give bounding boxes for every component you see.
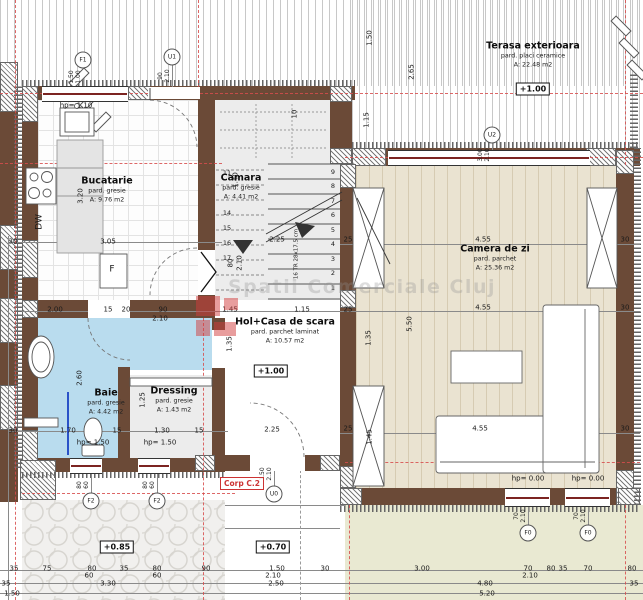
marker-u2: U2 xyxy=(484,127,501,144)
marker-f2: F2 xyxy=(149,493,166,510)
dim-label: 70 xyxy=(584,566,593,573)
dim-label: 30 xyxy=(621,426,630,433)
elevation-badge: +0.85 xyxy=(100,541,134,554)
room-label-terasa-exterioara: Terasa exterioarapard. placi ceramiceA: … xyxy=(486,41,580,70)
dim-label: 1.50 xyxy=(367,30,374,46)
dim-label: F xyxy=(109,266,114,275)
dim-label: 80 xyxy=(547,566,556,573)
dim-label: 20 xyxy=(122,307,131,314)
door-camara-opening xyxy=(198,250,215,295)
dim-label: 80 xyxy=(628,566,637,573)
window-f0-right xyxy=(565,488,610,507)
dim-label: 1.35 xyxy=(227,336,234,352)
dim-label: 25 xyxy=(344,237,353,244)
door-u1-opening xyxy=(148,87,200,99)
room-floor-finish: pard. parchet xyxy=(460,256,529,264)
dim-label: 1.70 xyxy=(60,428,76,435)
dim-label: 30 xyxy=(621,305,630,312)
garden-area xyxy=(345,505,643,600)
marker-dims: 902.10 xyxy=(157,69,171,82)
dimension-line xyxy=(0,583,643,584)
marker-dims: 8060 xyxy=(142,481,156,489)
corp-c2-tag: Corp C.2 xyxy=(220,477,264,490)
stair-number: 4 xyxy=(331,241,335,248)
dim-label: 2.65 xyxy=(409,64,416,80)
dim-label: 2.25 xyxy=(264,427,280,434)
room-area: A: 1.43 m2 xyxy=(150,406,197,414)
window-f0-left xyxy=(505,488,550,507)
watermark-logo xyxy=(196,320,210,336)
dimension-line xyxy=(340,433,640,434)
camera-de-zi-floor xyxy=(356,166,616,488)
axis-line xyxy=(0,163,222,164)
marker-dims: 702.10 xyxy=(573,509,587,522)
dim-label: hp= 1.10 xyxy=(60,103,93,110)
room-floor-finish: pard. gresie xyxy=(150,398,197,406)
dim-label: 1.50 xyxy=(4,591,20,598)
dim-label: 15 xyxy=(195,428,204,435)
dim-label: 2.10 xyxy=(522,573,538,580)
room-area: A: 10.57 m2 xyxy=(235,337,335,345)
dim-label: 1.35 xyxy=(366,330,373,346)
stair-number: 3 xyxy=(331,256,335,263)
stair-number: 17 xyxy=(223,255,231,262)
dim-label: 30 xyxy=(621,237,630,244)
hatch-pier xyxy=(20,460,56,500)
dim-label: 4.55 xyxy=(475,305,491,312)
marker-f0: F0 xyxy=(580,525,597,542)
marker-dims: 702.10 xyxy=(513,509,527,522)
stair-number: 5 xyxy=(331,227,335,234)
room-area: A: 4.41 m2 xyxy=(221,193,262,201)
hatch-pier xyxy=(330,86,352,102)
marker-dims: 1.501.00 xyxy=(68,70,82,83)
dim-label: hp= 1.50 xyxy=(77,440,110,447)
dim-label: 1.45 xyxy=(367,429,374,445)
dimension-line xyxy=(0,593,643,594)
dim-label: 16 TR 28x17.5 cm xyxy=(294,229,300,279)
dim-label: 15 xyxy=(104,307,113,314)
insulation-strip xyxy=(22,472,225,478)
watermark-logo xyxy=(214,322,236,336)
room-label-bucatarie: Bucatariepard. gresieA: 9.76 m2 xyxy=(81,176,132,205)
hatch-pier xyxy=(195,455,215,471)
glazing xyxy=(71,465,101,467)
insulation-strip xyxy=(352,142,640,148)
leader-line xyxy=(528,505,529,526)
watermark-text: Spatii Comerciale Cluj xyxy=(228,276,496,298)
dim-label: 15 xyxy=(113,428,122,435)
dim-label: 35 xyxy=(559,566,568,573)
dim-label: 3.00 xyxy=(414,566,430,573)
wall xyxy=(616,148,634,505)
dim-label: 3.20 xyxy=(78,188,85,204)
dim-label: 1.30 xyxy=(154,428,170,435)
glazing xyxy=(139,465,169,467)
room-label-dressing: Dressingpard. gresieA: 1.43 m2 xyxy=(150,386,197,415)
elevation-badge: +1.00 xyxy=(516,83,550,96)
dim-label: 1.25 xyxy=(140,392,147,408)
axis-line xyxy=(15,0,16,600)
dim-label: 30 xyxy=(9,428,18,435)
dimension-line xyxy=(225,528,340,529)
dim-label: 5.50 xyxy=(407,316,414,332)
dim-label: 2.10 xyxy=(265,573,281,580)
marker-f1: F1 xyxy=(75,52,92,69)
axis-line xyxy=(203,318,204,600)
watermark-logo xyxy=(224,298,238,310)
dim-label: 2.25 xyxy=(269,237,285,244)
dim-label: 25 xyxy=(344,307,353,314)
room-area: A: 25.36 m2 xyxy=(460,264,529,272)
hatch-pier xyxy=(330,148,352,164)
dim-label: 1.15 xyxy=(294,307,310,314)
stair-number: 14 xyxy=(223,210,231,217)
setback-dashed-line xyxy=(300,470,301,600)
dim-label: 75 xyxy=(43,566,52,573)
room-area: A: 9.76 m2 xyxy=(81,196,132,204)
dim-label: 90 xyxy=(159,307,168,314)
terasa-floor xyxy=(352,0,643,148)
dim-label: 30 xyxy=(321,566,330,573)
axis-line xyxy=(625,505,626,600)
insulation-strip xyxy=(634,148,641,505)
marker-f2: F2 xyxy=(83,493,100,510)
dim-label: 10 xyxy=(292,110,299,119)
glazing xyxy=(506,497,549,499)
dim-label: 25 xyxy=(344,426,353,433)
leader-line xyxy=(157,472,158,493)
dim-label: 2.60 xyxy=(77,370,84,386)
leader-line xyxy=(588,505,589,526)
dim-label: 35 xyxy=(10,566,19,573)
room-label-hol-casa-de-scara: Hol+Casa de scarapard. parchet laminatA:… xyxy=(235,317,335,346)
marker-u0: U0 xyxy=(266,486,283,503)
marker-dims: 3.002.10 xyxy=(477,148,491,161)
room-floor-finish: pard. placi ceramice xyxy=(486,53,580,61)
window-f1 xyxy=(42,86,128,102)
stair-number: 11 xyxy=(223,170,231,177)
glazing xyxy=(43,93,127,95)
stair-number: 16 xyxy=(223,240,231,247)
room-name: Terasa exterioara xyxy=(486,41,580,53)
dim-label: 1.15 xyxy=(364,112,371,128)
dim-label: 5.20 xyxy=(479,591,495,598)
dim-label: 3.30 xyxy=(100,581,116,588)
elevation-badge: +0.70 xyxy=(256,541,290,554)
dim-label: 60 xyxy=(153,573,162,580)
marker-f0: F0 xyxy=(520,525,537,542)
dim-label: 1.40 xyxy=(233,172,240,188)
room-floor-finish: pard. gresie xyxy=(87,400,125,408)
room-area: A: 4.42 m2 xyxy=(87,408,125,416)
axis-line xyxy=(345,462,640,463)
room-name: Camera de zi xyxy=(460,244,529,256)
room-floor-finish: pard. gresie xyxy=(81,188,132,196)
marker-dims: 8060 xyxy=(76,481,90,489)
dim-label: 4.55 xyxy=(472,426,488,433)
dim-label: 2.00 xyxy=(47,307,63,314)
leader-line xyxy=(172,65,173,88)
axis-line xyxy=(349,505,350,600)
room-area: A: 22.48 m2 xyxy=(486,61,580,69)
room-label-camera-de-zi: Camera de zipard. parchetA: 25.36 m2 xyxy=(460,244,529,273)
room-name: Hol+Casa de scara xyxy=(235,317,335,329)
hatch-pier xyxy=(340,164,356,188)
leader-line xyxy=(91,472,92,493)
room-label-camara: Camarapard. gresieA: 4.41 m2 xyxy=(221,173,262,202)
dim-label: hp= 0.00 xyxy=(572,476,605,483)
dim-label: 2.50 xyxy=(268,581,284,588)
room-floor-finish: pard. gresie xyxy=(221,185,262,193)
dim-label: 35 xyxy=(630,581,639,588)
hatch-pier xyxy=(22,300,38,318)
room-name: Bucatarie xyxy=(81,176,132,188)
dim-label: 3.05 xyxy=(100,239,116,246)
marker-u1: U1 xyxy=(164,49,181,66)
hatch-pier xyxy=(320,455,340,471)
window-baie xyxy=(70,458,102,474)
room-name: Dressing xyxy=(150,386,197,398)
window-dressing xyxy=(138,458,170,474)
stair-number: 7 xyxy=(331,198,335,205)
glazing xyxy=(566,497,609,499)
leader-line xyxy=(8,236,9,600)
dim-label: 2.10 xyxy=(237,255,244,271)
dim-label: hp= 1.50 xyxy=(144,440,177,447)
room-floor-finish: pard. parchet laminat xyxy=(235,329,335,337)
hatch-pier xyxy=(22,86,38,122)
dim-label: 60 xyxy=(85,573,94,580)
room-name: Baie xyxy=(87,388,125,400)
porch-floor xyxy=(225,471,345,600)
dim-label: 4.80 xyxy=(477,581,493,588)
dim-label: 35 xyxy=(120,566,129,573)
stair-number: 6 xyxy=(331,212,335,219)
elevation-badge: +1.00 xyxy=(254,365,288,378)
dim-label: 2.10 xyxy=(152,316,168,323)
floor-plan: Bucatariepard. gresieA: 9.76 m2Camarapar… xyxy=(0,0,643,600)
dim-label: 90 xyxy=(202,566,211,573)
hatch-pier xyxy=(340,488,362,505)
axis-line xyxy=(198,0,199,93)
stair-number: 15 xyxy=(223,225,231,232)
stair-number: 8 xyxy=(331,183,335,190)
stair-number: 9 xyxy=(331,169,335,176)
dim-label: DW xyxy=(36,214,45,230)
dim-label: 30 xyxy=(9,239,18,246)
watermark-logo xyxy=(196,296,220,316)
insulation-strip xyxy=(630,73,638,148)
dim-label: 4.55 xyxy=(475,237,491,244)
room-label-baie: Baiepard. gresieA: 4.42 m2 xyxy=(87,388,125,417)
hatch-pier xyxy=(340,466,356,488)
landing-floor xyxy=(215,100,330,164)
dim-label: 35 xyxy=(2,581,11,588)
dim-label: hp= 0.00 xyxy=(512,476,545,483)
wall xyxy=(340,164,356,488)
hatch-pier xyxy=(22,240,38,278)
dimension-line xyxy=(225,505,345,506)
